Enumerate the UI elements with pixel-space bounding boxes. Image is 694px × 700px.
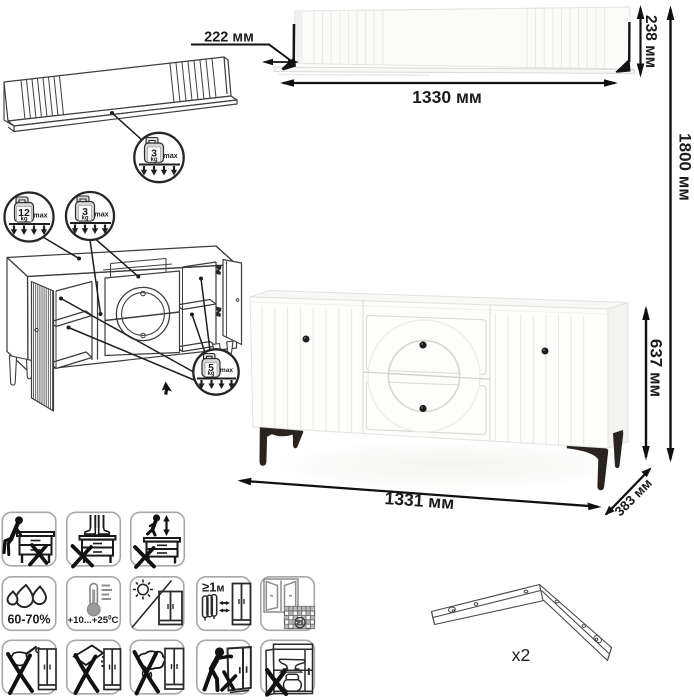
svg-text:kg: kg — [150, 157, 157, 163]
svg-text:21: 21 — [296, 620, 304, 627]
svg-text:max: max — [33, 211, 47, 220]
svg-text:1330 мм: 1330 мм — [412, 87, 482, 107]
svg-text:60-70%: 60-70% — [7, 613, 50, 627]
svg-text:kg: kg — [207, 371, 214, 377]
svg-text:≥1м: ≥1м — [202, 580, 225, 595]
svg-text:kg: kg — [81, 215, 88, 221]
svg-text:1800 мм: 1800 мм — [676, 133, 694, 201]
svg-text:238 мм: 238 мм — [642, 15, 659, 68]
svg-text:max: max — [163, 151, 177, 160]
svg-text:x2: x2 — [512, 645, 530, 665]
svg-text:kg: kg — [20, 216, 27, 222]
svg-text:max: max — [94, 210, 108, 219]
svg-text:+10...+250С: +10...+250С — [68, 615, 119, 626]
svg-text:222 мм: 222 мм — [204, 30, 254, 46]
svg-text:637 мм: 637 мм — [647, 339, 666, 397]
svg-text:max: max — [220, 367, 234, 374]
